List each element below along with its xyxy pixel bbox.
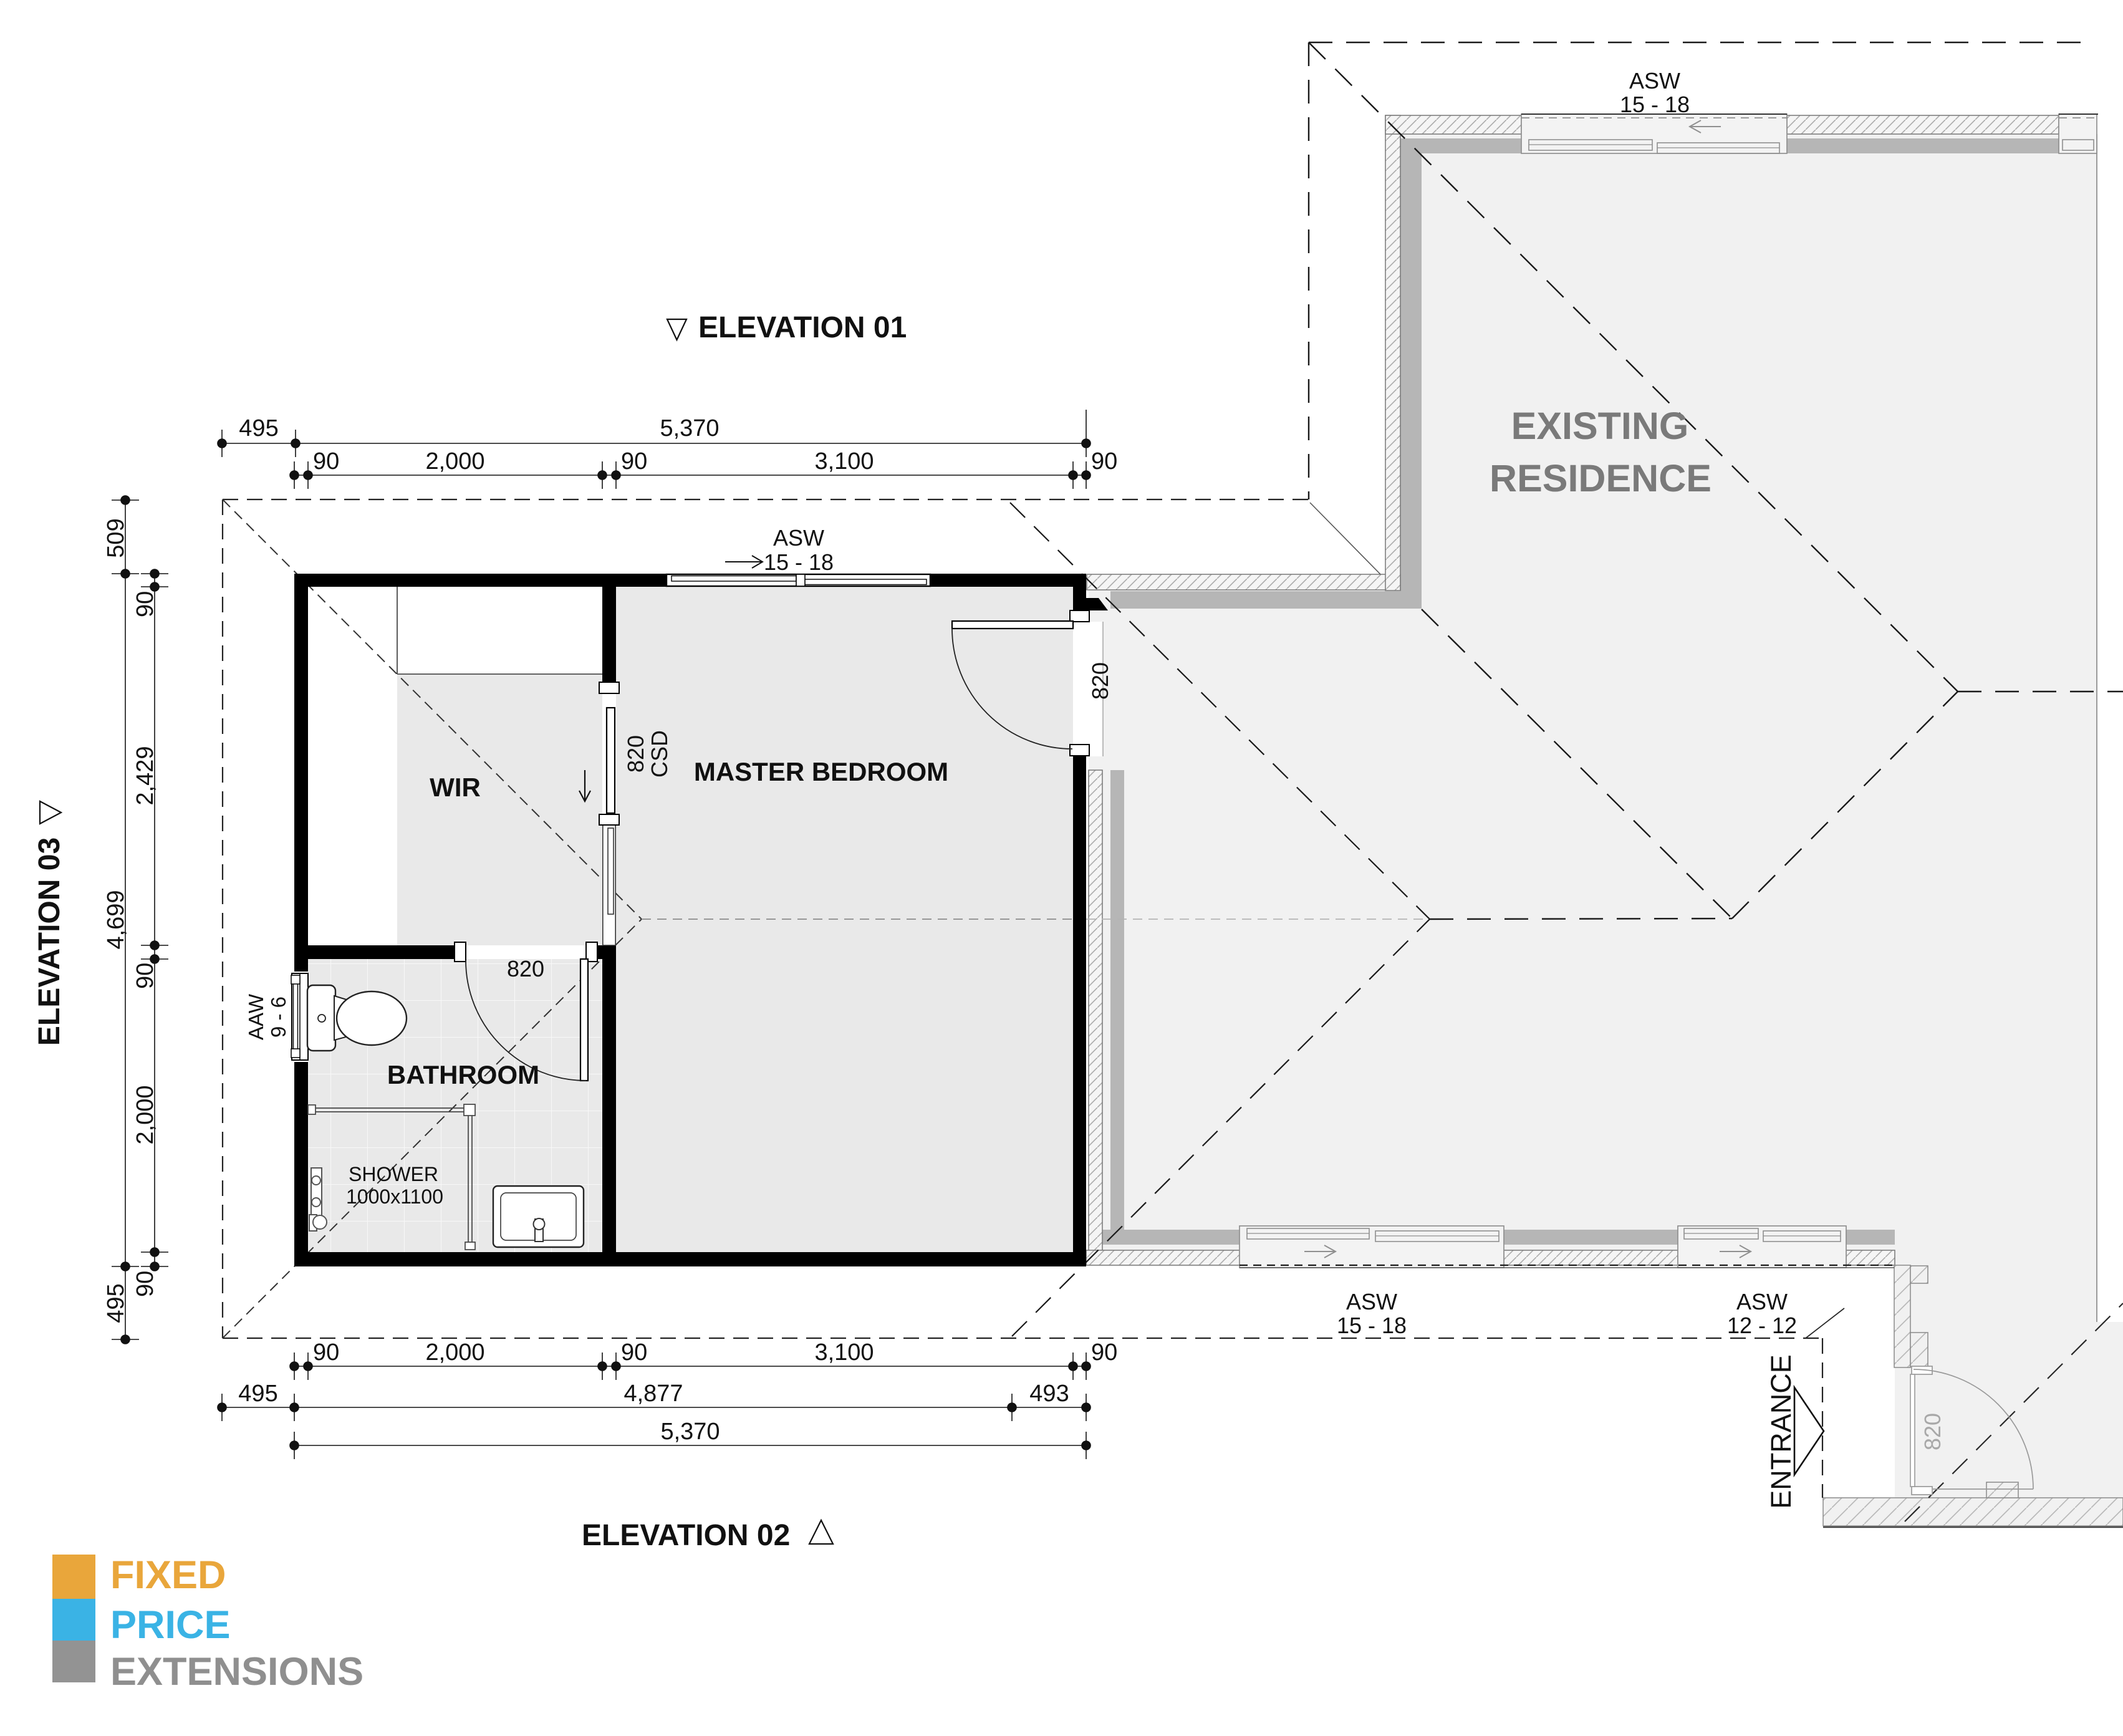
- svg-text:90: 90: [1091, 448, 1117, 475]
- svg-text:ELEVATION 02: ELEVATION 02: [582, 1519, 790, 1552]
- svg-text:2,000: 2,000: [425, 448, 484, 475]
- svg-text:ASW: ASW: [773, 525, 824, 551]
- svg-text:2,000: 2,000: [425, 1339, 484, 1366]
- svg-text:ENTRANCE: ENTRANCE: [1765, 1354, 1797, 1509]
- svg-text:15 - 18: 15 - 18: [1620, 92, 1690, 117]
- svg-text:ELEVATION 03: ELEVATION 03: [33, 837, 66, 1046]
- svg-text:3,100: 3,100: [814, 1339, 874, 1366]
- svg-text:ASW: ASW: [1736, 1289, 1788, 1314]
- svg-text:5,370: 5,370: [660, 1419, 720, 1445]
- svg-text:493: 493: [1029, 1381, 1069, 1407]
- svg-text:90: 90: [132, 963, 158, 989]
- svg-text:RESIDENCE: RESIDENCE: [1490, 457, 1711, 499]
- svg-text:12 - 12: 12 - 12: [1727, 1313, 1797, 1338]
- svg-text:ASW: ASW: [1629, 68, 1680, 94]
- svg-text:ASW: ASW: [1346, 1289, 1397, 1314]
- svg-text:820: 820: [1087, 662, 1113, 700]
- svg-text:EXISTING: EXISTING: [1511, 405, 1689, 447]
- svg-text:90: 90: [132, 591, 158, 617]
- svg-text:820: 820: [507, 956, 544, 981]
- svg-text:495: 495: [239, 415, 278, 441]
- svg-text:90: 90: [132, 1271, 158, 1297]
- svg-text:2,429: 2,429: [132, 746, 158, 805]
- svg-text:820: 820: [1920, 1413, 1945, 1450]
- svg-text:FIXED: FIXED: [110, 1553, 226, 1597]
- svg-text:90: 90: [1091, 1339, 1117, 1366]
- svg-text:PRICE: PRICE: [110, 1603, 231, 1647]
- svg-text:15 - 18: 15 - 18: [764, 549, 834, 575]
- svg-text:90: 90: [313, 448, 339, 475]
- svg-text:MASTER BEDROOM: MASTER BEDROOM: [694, 757, 948, 786]
- svg-text:2,000: 2,000: [132, 1085, 158, 1144]
- svg-text:CSD: CSD: [647, 730, 672, 778]
- svg-text:5,370: 5,370: [660, 415, 719, 441]
- svg-text:15 - 18: 15 - 18: [1337, 1313, 1407, 1338]
- svg-text:90: 90: [313, 1339, 339, 1366]
- svg-text:90: 90: [621, 1339, 647, 1366]
- svg-text:4,699: 4,699: [103, 890, 129, 949]
- svg-text:495: 495: [103, 1283, 129, 1323]
- svg-text:1000x1100: 1000x1100: [346, 1185, 443, 1208]
- svg-text:EXTENSIONS: EXTENSIONS: [110, 1650, 363, 1694]
- svg-text:BATHROOM: BATHROOM: [387, 1060, 539, 1089]
- svg-text:3,100: 3,100: [814, 448, 874, 475]
- svg-text:820: 820: [623, 735, 648, 773]
- svg-text:SHOWER: SHOWER: [349, 1163, 438, 1185]
- svg-text:4,877: 4,877: [623, 1381, 683, 1407]
- svg-text:495: 495: [238, 1381, 277, 1407]
- svg-text:ELEVATION 01: ELEVATION 01: [698, 311, 907, 344]
- svg-text:509: 509: [103, 518, 129, 557]
- svg-text:9 - 6: 9 - 6: [267, 996, 290, 1038]
- svg-text:WIR: WIR: [430, 773, 481, 802]
- svg-text:90: 90: [621, 448, 647, 475]
- svg-text:AAW: AAW: [244, 993, 267, 1040]
